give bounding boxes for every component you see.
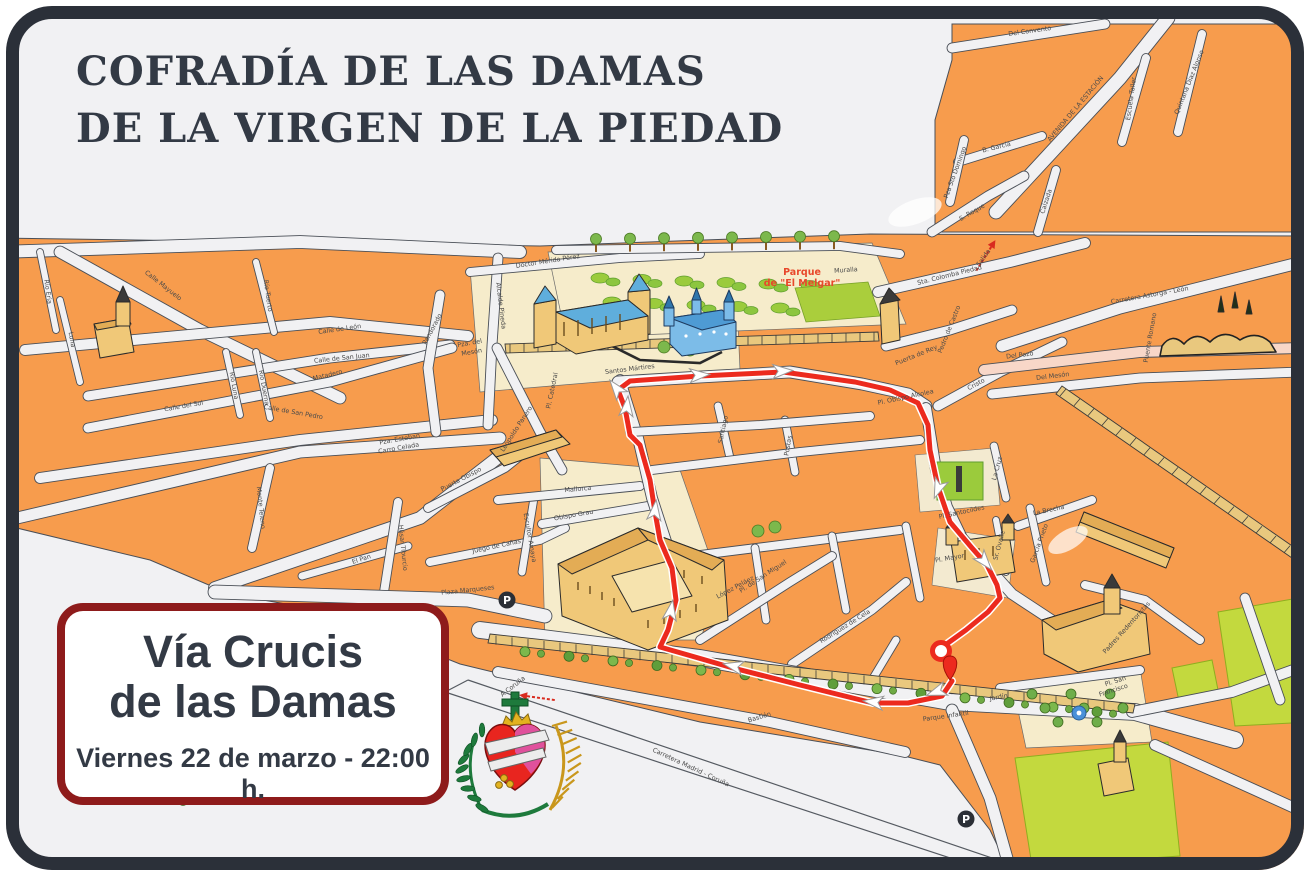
crest-flower — [496, 782, 503, 789]
event-datetime: Viernes 22 de marzo - 22:00 h. — [65, 743, 441, 805]
parking-icon: P — [958, 811, 975, 828]
street-label: Carretera Madrid - Coruña — [651, 746, 730, 789]
cofradia-crest-icon — [452, 690, 582, 838]
crest-laurel-leaves — [455, 723, 490, 814]
crest-flower — [507, 781, 514, 788]
park-label-line2: de "El Melgar" — [764, 278, 841, 289]
crest-stems — [482, 804, 548, 816]
crest-palm-fronds — [550, 719, 582, 808]
title-line2: DE LA VIRGEN DE LA PIEDAD — [76, 101, 783, 158]
park-label-line1: Parque — [783, 267, 821, 278]
event-name-line2: de las Damas — [65, 677, 441, 727]
svg-text:P: P — [503, 594, 511, 607]
page-title: COFRADÍA DE LAS DAMAS DE LA VIRGEN DE LA… — [76, 44, 783, 158]
title-line1: COFRADÍA DE LAS DAMAS — [76, 44, 783, 101]
procession-poster: Calle MayueloRío EriaLunaRío TuertoRío L… — [0, 0, 1310, 876]
event-name-line1: Vía Crucis — [65, 627, 441, 677]
street-label: Muralla — [834, 265, 858, 275]
parking-icon: P — [499, 592, 516, 609]
crest-flower — [501, 775, 508, 782]
event-info-box: Vía Crucis de las Damas Viernes 22 de ma… — [57, 603, 449, 805]
svg-text:P: P — [962, 813, 970, 826]
